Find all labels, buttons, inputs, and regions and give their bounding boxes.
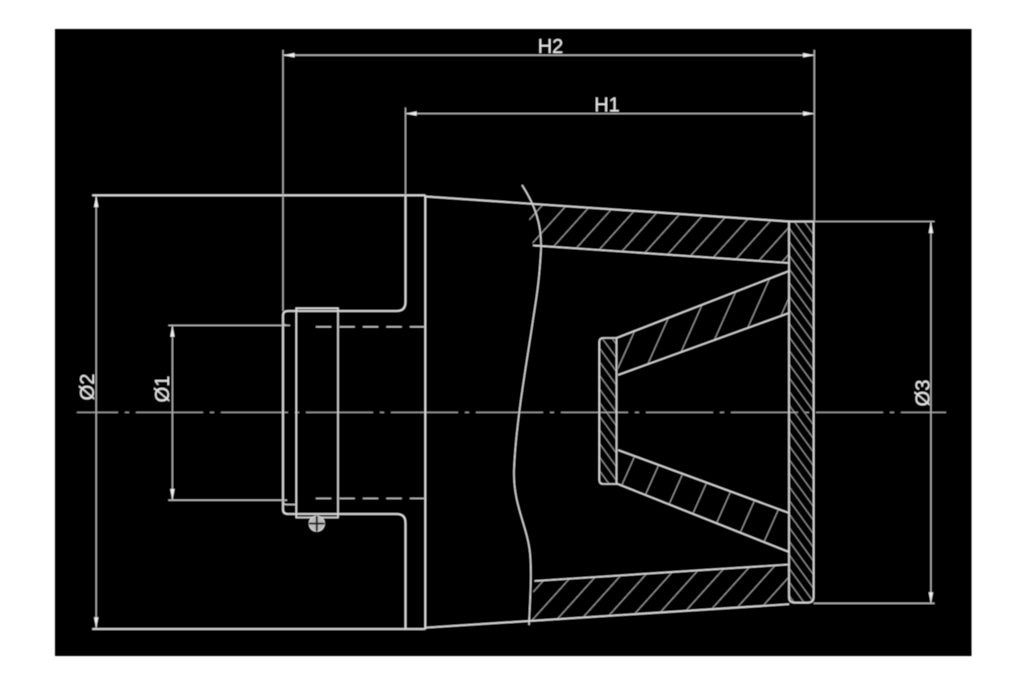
svg-text:H1: H1 [594, 95, 620, 117]
svg-text:Ø2: Ø2 [77, 374, 99, 401]
svg-text:H2: H2 [538, 36, 564, 58]
svg-text:Ø3: Ø3 [913, 380, 935, 407]
svg-text:Ø1: Ø1 [152, 376, 174, 403]
